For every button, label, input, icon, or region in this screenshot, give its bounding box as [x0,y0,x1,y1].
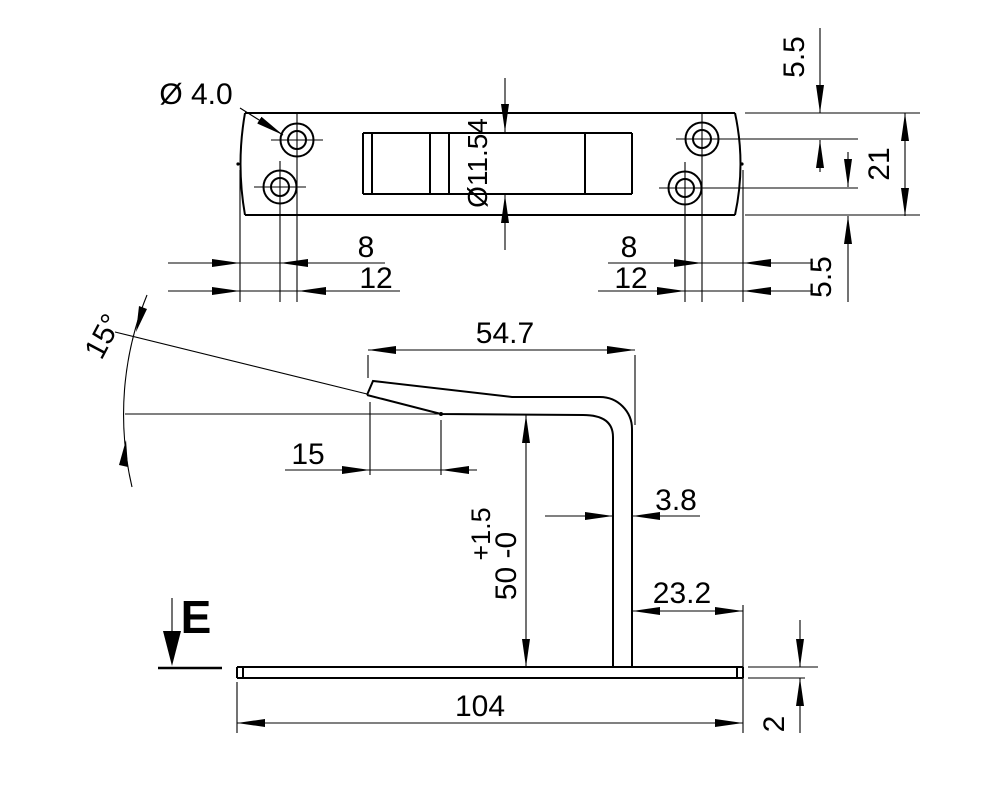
technical-drawing-canvas: Ø 4.0 Ø11.54 8 12 8 12 5.5 21 5.5 [0,0,1000,800]
view-arrow-head [163,631,181,666]
dim-8-right-label: 8 [621,231,638,264]
bend-point-dot [439,412,443,416]
drawing-svg: Ø 4.0 Ø11.54 8 12 8 12 5.5 21 5.5 [0,0,1000,800]
right-tangent-dot [740,162,743,165]
hole-diameter-label: Ø 4.0 [159,78,232,111]
bend-angle-label: 15° [78,309,128,365]
dim-547-label: 54.7 [476,317,534,350]
dim-38-label: 3.8 [655,484,697,517]
dim-21-label: 21 [863,147,896,180]
dim-2-label: 2 [758,716,791,733]
base-plate-outline [237,667,743,678]
side-extension-lines [237,355,818,733]
dim-12-right-label: 12 [614,262,647,295]
slot-width-label: Ø11.54 [462,118,493,208]
dim-15-label: 15 [291,438,324,471]
dim-55-bot-label: 5.5 [805,256,838,298]
dim-50-label: 50 -0 [490,532,523,600]
angle-arrow-bottom [119,440,128,467]
top-view: Ø 4.0 Ø11.54 8 12 8 12 5.5 21 5.5 [159,28,920,302]
dim-232-label: 23.2 [653,577,711,610]
bracket-outline [367,381,632,667]
dim-104-label: 104 [455,690,505,723]
view-direction-label: E [181,591,212,643]
slot-outline [363,133,632,194]
view-direction-marker: E [158,591,222,668]
dim-8-left-label: 8 [358,231,375,264]
side-view: 15° 54.7 15 +1.5 50 -0 3.8 23.2 104 2 [78,295,818,733]
dim-12-left-label: 12 [359,262,392,295]
left-tangent-dot [236,162,239,165]
dim-55-top-label: 5.5 [778,36,811,78]
angle-arrow-top [136,306,147,332]
